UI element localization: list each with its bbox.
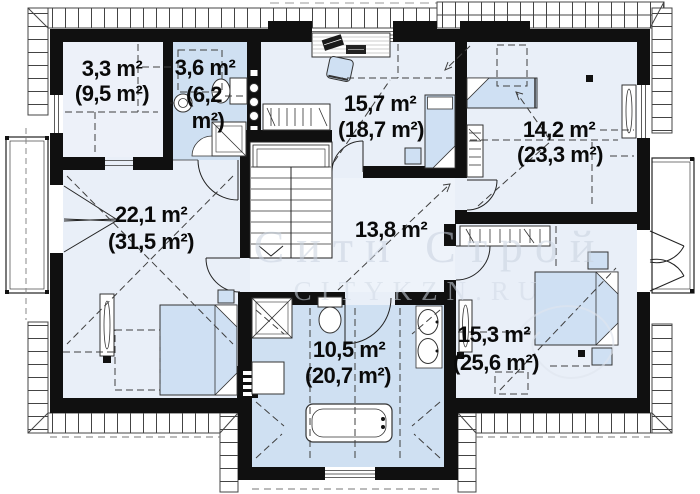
wardrobe-icon-right: [467, 125, 483, 177]
desk-icon: [312, 33, 390, 57]
label-bedroom-top-total: (18,7 m²): [338, 117, 424, 142]
radiator-icon-left: [100, 294, 114, 363]
label-small-bath-area: 3,6 m²: [175, 55, 236, 80]
label-closet-area: 3,3 m²: [82, 56, 143, 81]
bed-icon-left-room: [160, 290, 237, 395]
label-bedroom-left-area: 22,1 m²: [115, 202, 187, 227]
watermark-line2: CITYKZN.RU: [294, 276, 547, 306]
balcony-right: [652, 157, 694, 293]
double-sink-icon: [416, 306, 442, 368]
washing-machine-icon: [252, 362, 284, 394]
label-bedroom-left-total: (31,5 m²): [108, 229, 194, 254]
wardrobe-icon-top: [263, 104, 330, 130]
label-bedroom-right-total: (23,3 m²): [517, 142, 603, 167]
label-small-bath-total-1: (6,2: [186, 82, 222, 107]
label-main-bath-area: 10,5 m²: [313, 337, 385, 362]
label-bedroom-right-area: 14,2 m²: [523, 117, 595, 142]
bathtub-icon: [306, 404, 392, 442]
label-closet-total: (9,5 m²): [75, 81, 149, 106]
label-main-bath-total: (20,7 m²): [305, 363, 391, 388]
floor-plan-canvas: Сити Строй CITYKZN.RU 3,3 m² (9,5 m²) 3,…: [0, 0, 700, 494]
floor-plan: Сити Строй CITYKZN.RU 3,3 m² (9,5 m²) 3,…: [0, 0, 700, 494]
label-bedroom-br-total: (25,6 m²): [453, 350, 539, 375]
shower-icon-main-bath: [252, 298, 292, 338]
label-bedroom-top-area: 15,7 m²: [344, 91, 416, 116]
balcony-left: [5, 128, 49, 320]
label-bedroom-br-area: 15,3 m²: [458, 322, 530, 347]
label-small-bath-total-2: m²): [192, 108, 225, 133]
label-hall-area: 13,8 m²: [355, 217, 427, 242]
watermark-line1: Сити Строй: [254, 221, 607, 272]
